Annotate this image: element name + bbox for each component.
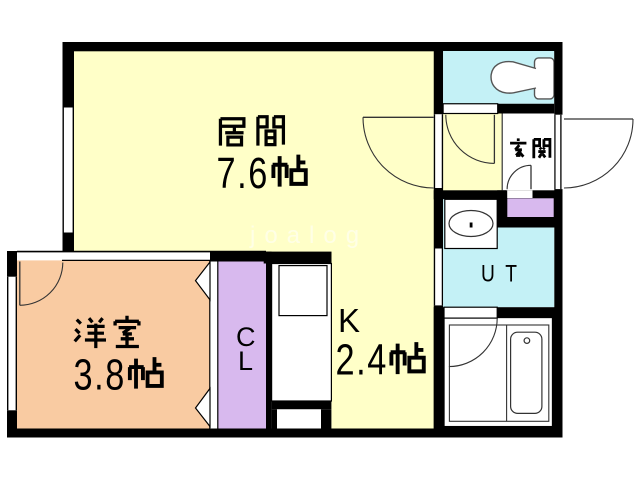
svg-text:L: L bbox=[238, 346, 253, 376]
svg-text:3.8: 3.8 bbox=[74, 350, 126, 399]
svg-text:2.4: 2.4 bbox=[336, 335, 388, 384]
svg-text:joalog: joalog bbox=[249, 222, 368, 249]
svg-text:7.6: 7.6 bbox=[217, 149, 269, 198]
svg-text:K: K bbox=[338, 302, 360, 339]
svg-text:UT: UT bbox=[481, 259, 527, 287]
